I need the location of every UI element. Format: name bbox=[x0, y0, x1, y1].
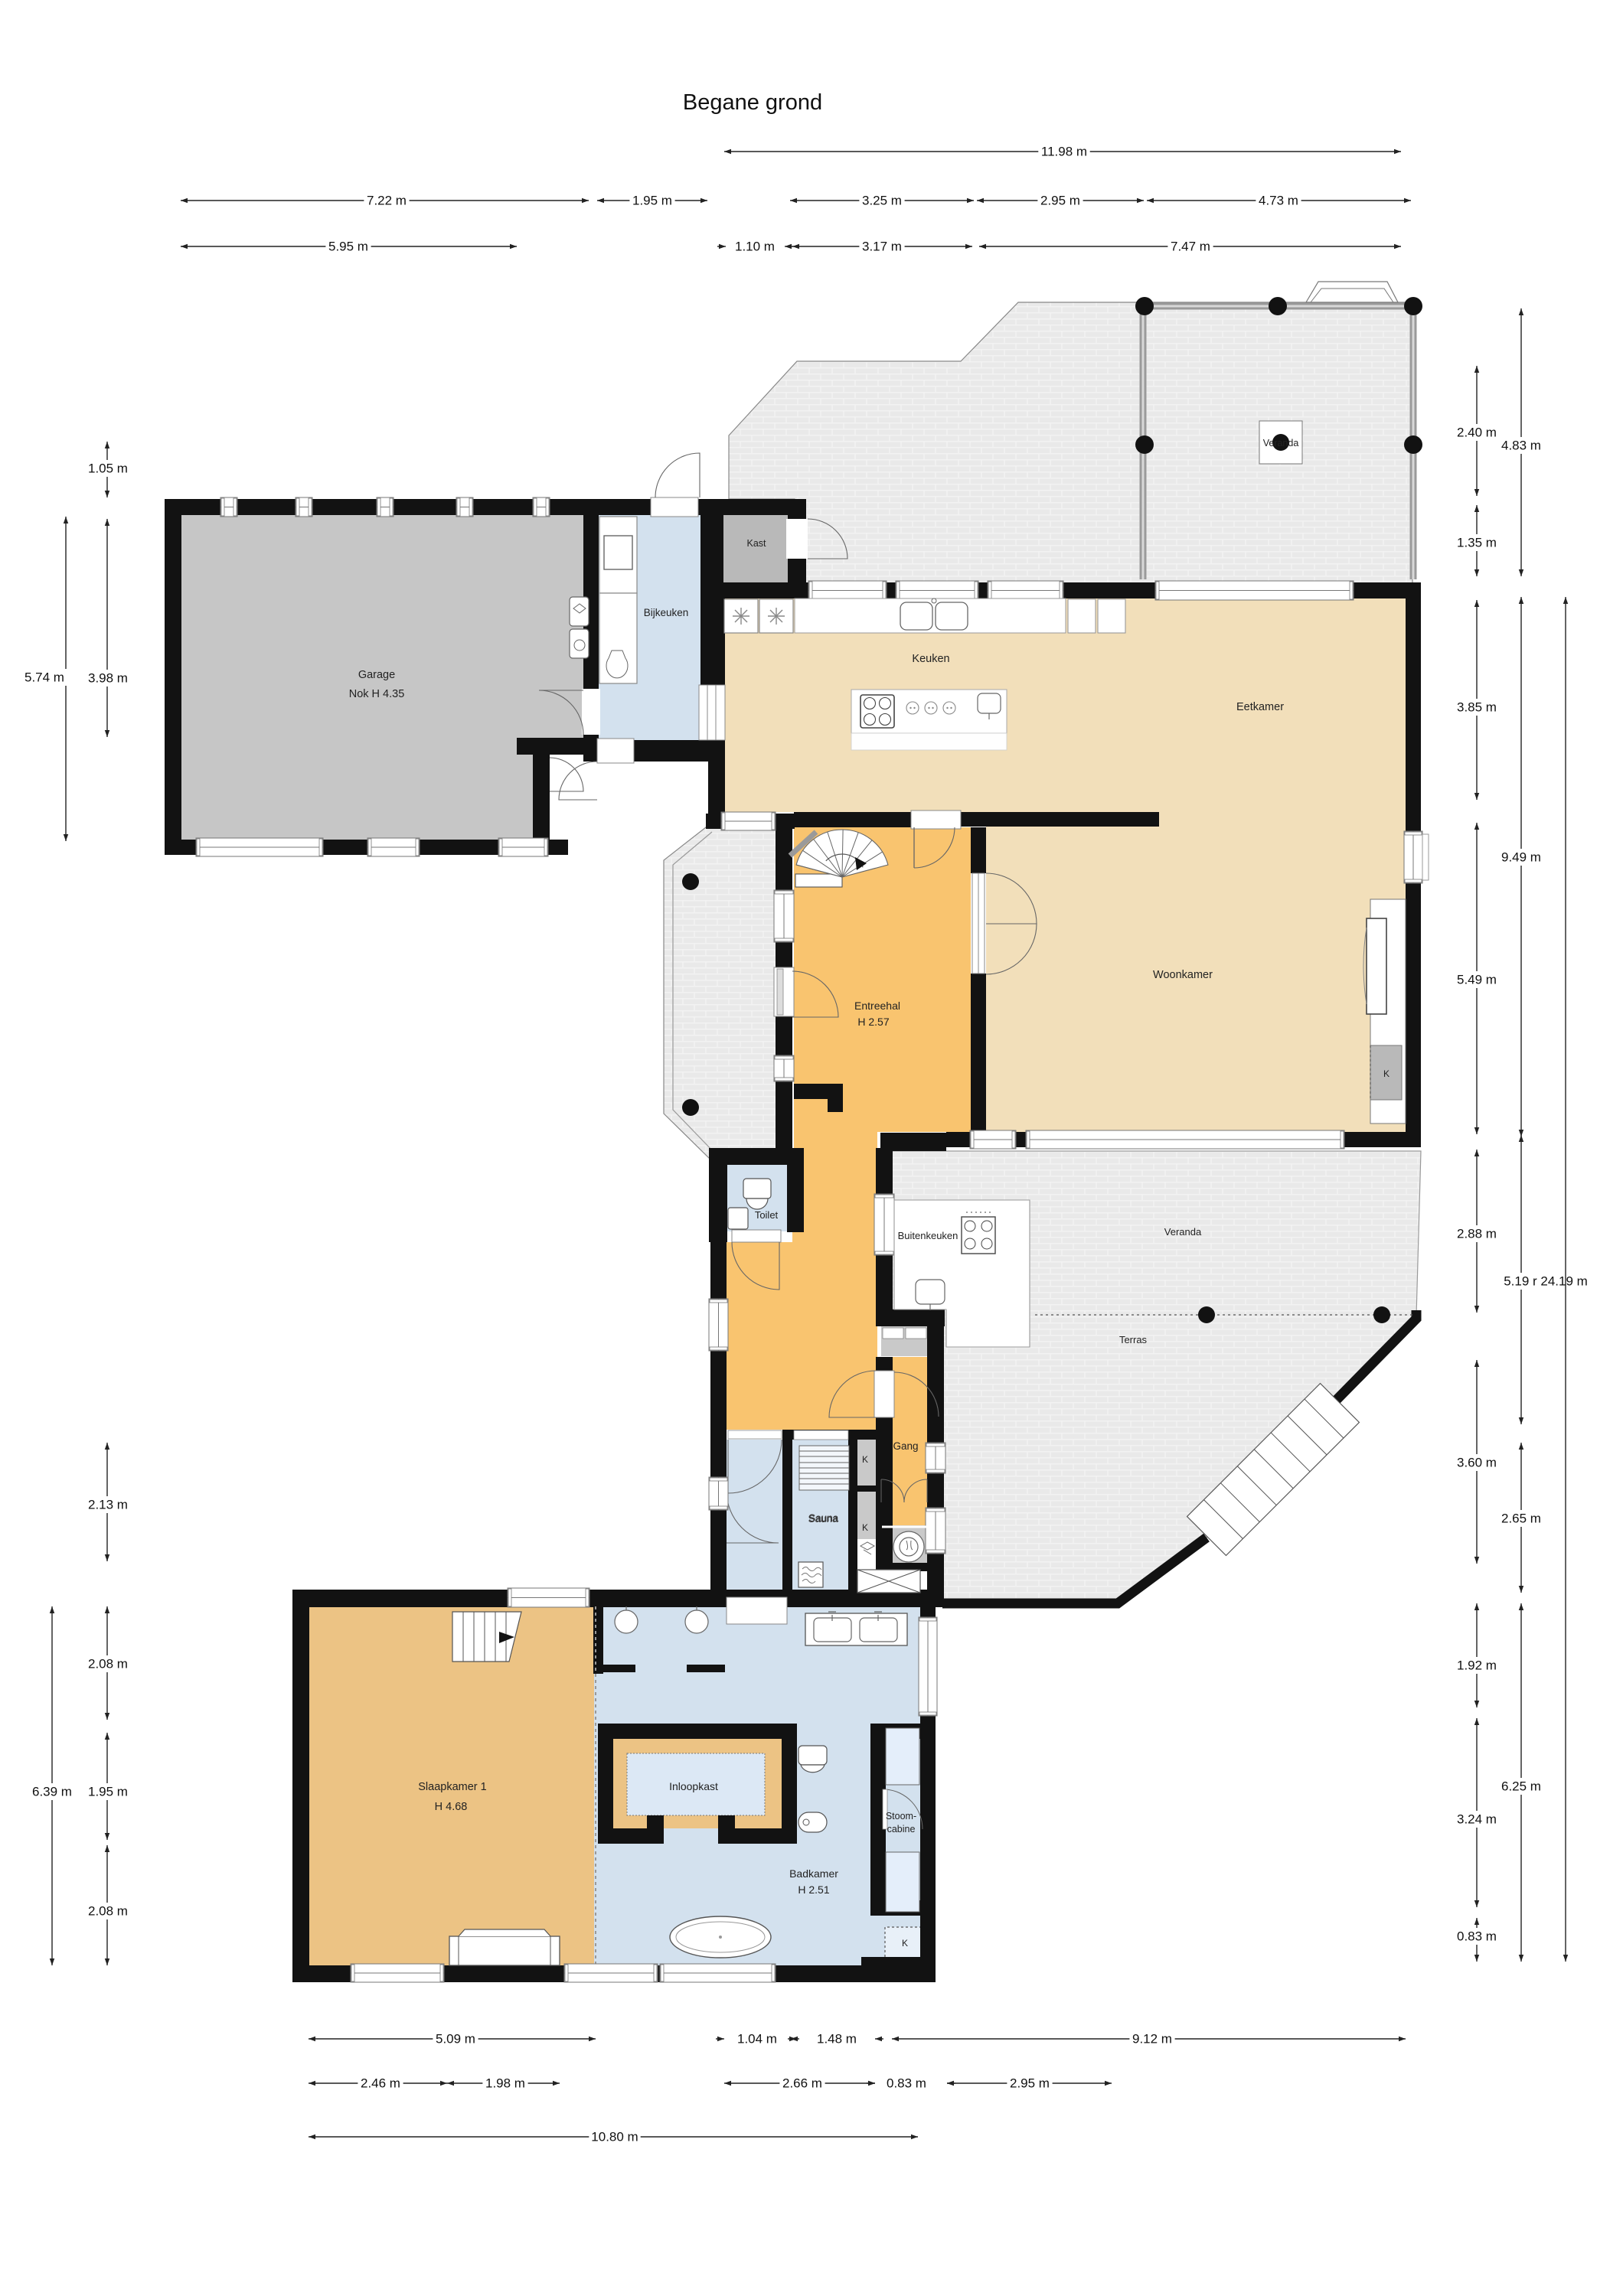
svg-text:Slaapkamer 1: Slaapkamer 1 bbox=[418, 1781, 486, 1793]
svg-text:Eetkamer: Eetkamer bbox=[1236, 701, 1284, 713]
svg-text:Inloopkast: Inloopkast bbox=[669, 1780, 718, 1792]
svg-text:cabine: cabine bbox=[887, 1824, 916, 1835]
svg-text:Kast: Kast bbox=[746, 538, 766, 549]
svg-text:5.74 m: 5.74 m bbox=[24, 670, 64, 685]
svg-text:7.47 m: 7.47 m bbox=[1171, 240, 1210, 254]
svg-text:7.22 m: 7.22 m bbox=[367, 194, 407, 208]
svg-text:K: K bbox=[862, 1522, 868, 1533]
svg-text:1.35 m: 1.35 m bbox=[1457, 536, 1497, 550]
svg-text:3.17 m: 3.17 m bbox=[862, 240, 902, 254]
svg-text:6.25 m: 6.25 m bbox=[1501, 1779, 1541, 1794]
svg-text:0.83 m: 0.83 m bbox=[887, 2076, 926, 2091]
svg-text:3.85 m: 3.85 m bbox=[1457, 700, 1497, 715]
svg-text:Badkamer: Badkamer bbox=[789, 1867, 838, 1880]
svg-text:Veranda: Veranda bbox=[1164, 1226, 1202, 1238]
svg-text:1.95 m: 1.95 m bbox=[88, 1785, 128, 1799]
svg-text:3.24 m: 3.24 m bbox=[1457, 1812, 1497, 1827]
svg-text:1.48 m: 1.48 m bbox=[817, 2032, 857, 2047]
svg-text:Toilet: Toilet bbox=[755, 1209, 779, 1221]
svg-text:Sauna: Sauna bbox=[808, 1512, 839, 1524]
svg-text:2.40 m: 2.40 m bbox=[1457, 426, 1497, 440]
svg-text:1.98 m: 1.98 m bbox=[485, 2076, 525, 2091]
svg-text:2.66 m: 2.66 m bbox=[782, 2076, 822, 2091]
svg-text:H 2.57: H 2.57 bbox=[857, 1016, 889, 1028]
svg-text:3.60 m: 3.60 m bbox=[1457, 1456, 1497, 1470]
svg-text:Terras: Terras bbox=[1119, 1334, 1148, 1345]
svg-text:5.09 m: 5.09 m bbox=[436, 2032, 475, 2047]
svg-text:Bijkeuken: Bijkeuken bbox=[644, 607, 689, 618]
svg-text:Begane grond: Begane grond bbox=[683, 90, 822, 115]
svg-text:1.10 m: 1.10 m bbox=[735, 240, 775, 254]
svg-text:1.05 m: 1.05 m bbox=[88, 461, 128, 476]
svg-text:Gang: Gang bbox=[893, 1440, 918, 1452]
svg-text:4.73 m: 4.73 m bbox=[1259, 194, 1298, 208]
svg-text:2.46 m: 2.46 m bbox=[361, 2076, 400, 2091]
svg-text:0.83 m: 0.83 m bbox=[1457, 1929, 1497, 1944]
svg-text:Veranda: Veranda bbox=[1263, 438, 1299, 448]
svg-text:H 4.68: H 4.68 bbox=[435, 1801, 468, 1813]
svg-text:H 2.51: H 2.51 bbox=[798, 1883, 829, 1896]
svg-text:10.80 m: 10.80 m bbox=[591, 2130, 638, 2144]
svg-text:2.13 m: 2.13 m bbox=[88, 1498, 128, 1512]
svg-text:2.08 m: 2.08 m bbox=[88, 1657, 128, 1671]
svg-text:6.39 m: 6.39 m bbox=[32, 1785, 72, 1799]
svg-text:11.98 m: 11.98 m bbox=[1041, 145, 1087, 159]
svg-text:1.04 m: 1.04 m bbox=[737, 2032, 777, 2047]
svg-text:5.49 m: 5.49 m bbox=[1457, 973, 1497, 987]
svg-text:2.65 m: 2.65 m bbox=[1501, 1512, 1541, 1526]
svg-text:5.95 m: 5.95 m bbox=[328, 240, 368, 254]
svg-text:Entreehal: Entreehal bbox=[854, 1000, 900, 1012]
svg-text:Nok H 4.35: Nok H 4.35 bbox=[349, 688, 405, 700]
svg-text:3.25 m: 3.25 m bbox=[862, 194, 902, 208]
svg-text:K: K bbox=[1383, 1068, 1390, 1079]
svg-text:9.12 m: 9.12 m bbox=[1132, 2032, 1172, 2047]
svg-text:1.95 m: 1.95 m bbox=[632, 194, 672, 208]
svg-text:2.95 m: 2.95 m bbox=[1040, 194, 1080, 208]
svg-text:K: K bbox=[902, 1938, 908, 1949]
svg-text:Stoom-: Stoom- bbox=[886, 1811, 916, 1821]
svg-text:Woonkamer: Woonkamer bbox=[1153, 969, 1213, 981]
svg-text:Keuken: Keuken bbox=[912, 653, 949, 665]
svg-text:4.83 m: 4.83 m bbox=[1501, 439, 1541, 453]
svg-text:2.95 m: 2.95 m bbox=[1010, 2076, 1050, 2091]
svg-text:2.88 m: 2.88 m bbox=[1457, 1227, 1497, 1241]
svg-text:3.98 m: 3.98 m bbox=[88, 671, 128, 686]
svg-text:1.92 m: 1.92 m bbox=[1457, 1658, 1497, 1673]
svg-text:5.19 r 24.19 m: 5.19 r 24.19 m bbox=[1504, 1274, 1588, 1289]
svg-text:2.08 m: 2.08 m bbox=[88, 1904, 128, 1919]
svg-text:Garage: Garage bbox=[358, 669, 395, 681]
svg-text:K: K bbox=[862, 1454, 868, 1465]
svg-text:9.49 m: 9.49 m bbox=[1501, 850, 1541, 865]
svg-text:Buitenkeuken: Buitenkeuken bbox=[898, 1230, 958, 1241]
